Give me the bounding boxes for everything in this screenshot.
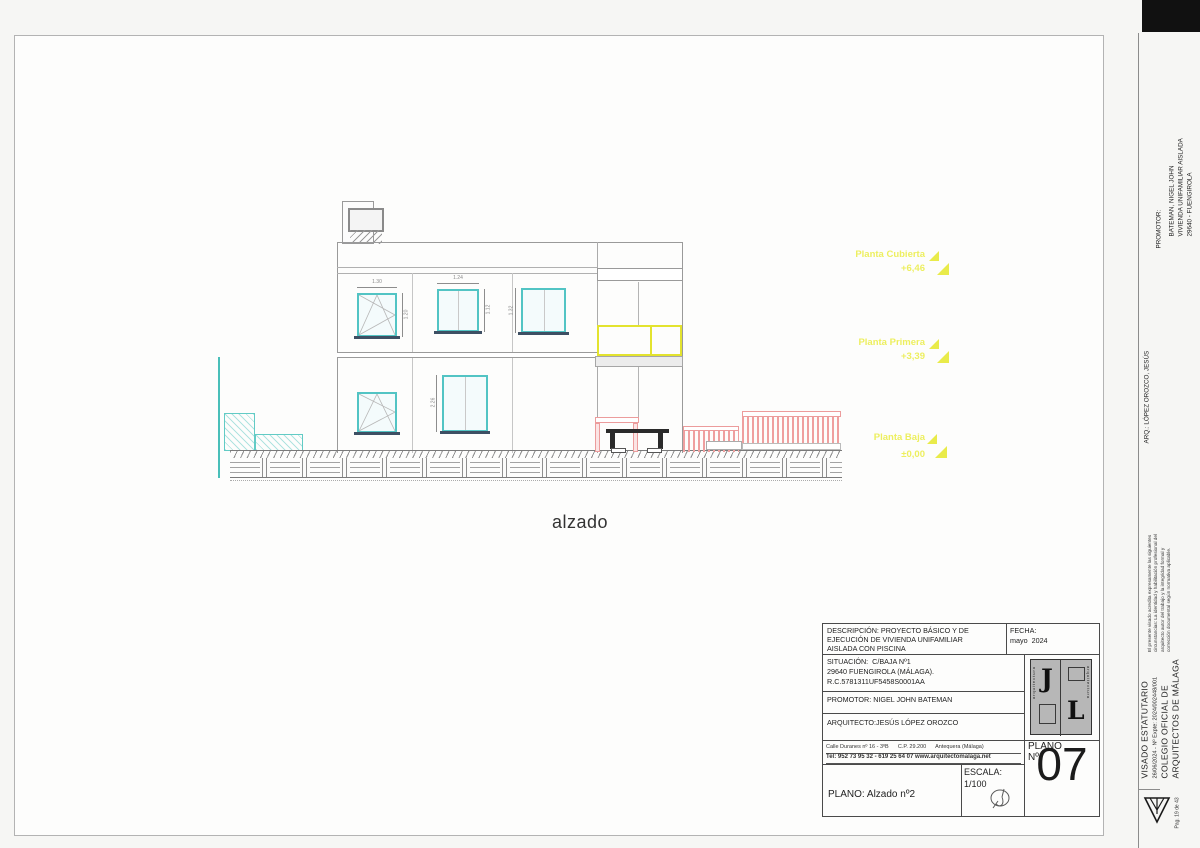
level-value: ±0,00 — [790, 449, 925, 461]
ground-dotted-line — [230, 480, 842, 481]
page-note: Pag. 19 de 43 — [1175, 785, 1182, 829]
boundary-wall-line — [218, 357, 220, 478]
dim-label: 2.26 — [432, 396, 437, 410]
promotor-line: PROMOTOR: NIGEL JOHN BATEMAN — [827, 695, 952, 705]
pergola-post-left — [595, 423, 600, 452]
dim-label: 1.12 — [487, 303, 492, 317]
tower-yellow-window — [597, 325, 682, 356]
logo-letter-j: J — [1041, 666, 1053, 691]
situacion-line: 29640 FUENGIROLA (MÁLAGA). — [827, 667, 934, 677]
parapet-line-2 — [337, 273, 597, 274]
parapet-line-1 — [337, 267, 597, 268]
studio-phone: Tel: 952 73 95 32 - 619 25 64 07 www.arq… — [826, 753, 1021, 764]
logo-step-shape — [1068, 667, 1085, 681]
logo-side-text: arquitectura — [1032, 666, 1036, 699]
promotor-strip-line: 29640 - FUENGIROLA — [1186, 107, 1195, 237]
visado-block: VISADO ESTATUTARIO 26/06/2024 - Nº Expte… — [1140, 654, 1184, 779]
tower-fascia — [597, 268, 683, 281]
colegio-line: COLEGIO OFICIAL DE — [1159, 654, 1171, 779]
window-sill — [434, 331, 482, 334]
chimney-box — [348, 208, 384, 232]
title-block: DESCRIPCIÓN: PROYECTO BÁSICO Y DE EJECUC… — [822, 623, 1100, 817]
fecha-label: FECHA: — [1010, 626, 1036, 636]
arquitecto-strip-line: ARQ.: LÓPEZ OROZCO, JESÚS — [1143, 334, 1152, 444]
strip-separator — [1138, 789, 1160, 790]
fecha-value: mayo 2024 — [1010, 636, 1048, 646]
escala-label: ESCALA: — [964, 768, 1002, 778]
situacion-line: R.C.5781311UF5458S0001AA — [827, 677, 925, 687]
descripcion-line: AISLADA CON PISCINA — [827, 644, 906, 654]
window-ground-left — [357, 392, 397, 433]
table-foot — [611, 448, 626, 453]
level-value: +6,46 — [790, 263, 925, 275]
level-name: Planta Primera — [790, 337, 925, 349]
logo-letter-l: L — [1067, 698, 1085, 723]
ground-foundation — [230, 458, 842, 478]
promotor-strip-values: BATEMAN, NIGEL JOHN VIVIENDA UNIFAMILIAR… — [1168, 107, 1195, 237]
promotor-strip-line: VIVIENDA UNIFAMILIAR AISLADA — [1177, 107, 1186, 237]
escala-value: 1/100 — [964, 780, 987, 790]
redaction-box — [1142, 0, 1200, 32]
mid-slab — [337, 352, 597, 358]
table-leg — [658, 433, 663, 449]
plano-title: PLANO: Alzado nº2 — [828, 790, 915, 800]
boundary-step-1 — [224, 413, 255, 451]
dim-label: 1.30 — [357, 280, 397, 285]
logo-step-shape — [1039, 704, 1056, 724]
dim-line — [357, 287, 397, 288]
architect-logo: J L arquitectura arquitectura — [1030, 659, 1092, 735]
plano-number: 07 — [1027, 760, 1097, 770]
logo-divider — [1060, 660, 1061, 736]
colegio-line: ARQUITECTOS DE MÁLAGA — [1171, 654, 1183, 779]
window-mullion — [458, 291, 459, 330]
window-upper-right — [521, 288, 566, 333]
dim-label: 1.24 — [437, 276, 479, 281]
logo-side-text: arquitectura — [1086, 666, 1090, 699]
joint-line-1a — [412, 273, 413, 352]
studio-address: Calle Duranes nº 16 - 3ºB C.P. 29.200 An… — [826, 743, 1021, 754]
dim-line — [437, 283, 479, 284]
window-sill — [354, 336, 400, 339]
level-value: +3,39 — [790, 351, 925, 363]
dim-line — [515, 288, 516, 333]
window-sill — [354, 432, 400, 435]
door-mullion — [465, 377, 466, 430]
ground-hatch — [230, 451, 842, 458]
pergola-post-right — [633, 423, 638, 452]
visado-note: El presente visado acredita expresamente… — [1147, 502, 1173, 652]
tower-yellow-divider — [650, 325, 652, 356]
door-ground — [442, 375, 488, 432]
arquitecto-line: ARQUITECTO:JESÚS LÓPEZ OROZCO — [827, 718, 958, 728]
dim-label: 1.20 — [405, 308, 410, 322]
roof-line — [337, 242, 683, 243]
stamp-icon — [987, 784, 1013, 812]
casement-symbol-icon — [359, 394, 395, 431]
visado-expediente: 26/06/2024 - Nº Expte: 2024/002448/001 — [1151, 654, 1159, 779]
dim-label: 1.32 — [510, 304, 515, 318]
tower-inner-line-b — [638, 367, 639, 418]
terrace-step — [706, 441, 742, 450]
visado-note-line: corrección documental según normativa ap… — [1166, 502, 1172, 652]
tower-band — [595, 356, 683, 367]
promotor-strip-line: BATEMAN, NIGEL JOHN — [1168, 107, 1177, 237]
table-leg — [610, 433, 615, 449]
casement-symbol-icon — [359, 295, 395, 335]
drawing-caption: alzado — [505, 512, 655, 533]
window-upper-left — [357, 293, 397, 337]
situacion-line: SITUACIÓN: C/BAJA Nº1 — [827, 657, 911, 667]
page: 1.30 1.20 1.24 1.12 1.32 2.26 Planta Cub… — [0, 0, 1200, 848]
boundary-step-2 — [255, 434, 303, 451]
tower-inner-line-a — [638, 282, 639, 325]
promotor-strip-label: PROMOTOR: — [1155, 189, 1164, 249]
window-mullion — [544, 290, 545, 331]
joint-line-2b — [512, 357, 513, 453]
level-name: Planta Baja — [790, 432, 925, 444]
window-sill — [518, 332, 569, 335]
level-name: Planta Cubierta — [790, 249, 925, 261]
visado-title: VISADO ESTATUTARIO — [1140, 654, 1152, 779]
door-sill — [440, 431, 490, 434]
window-upper-mid — [437, 289, 479, 332]
joint-line-1b — [412, 357, 413, 453]
colegio-logo-icon — [1142, 792, 1172, 826]
table-foot — [647, 448, 662, 453]
